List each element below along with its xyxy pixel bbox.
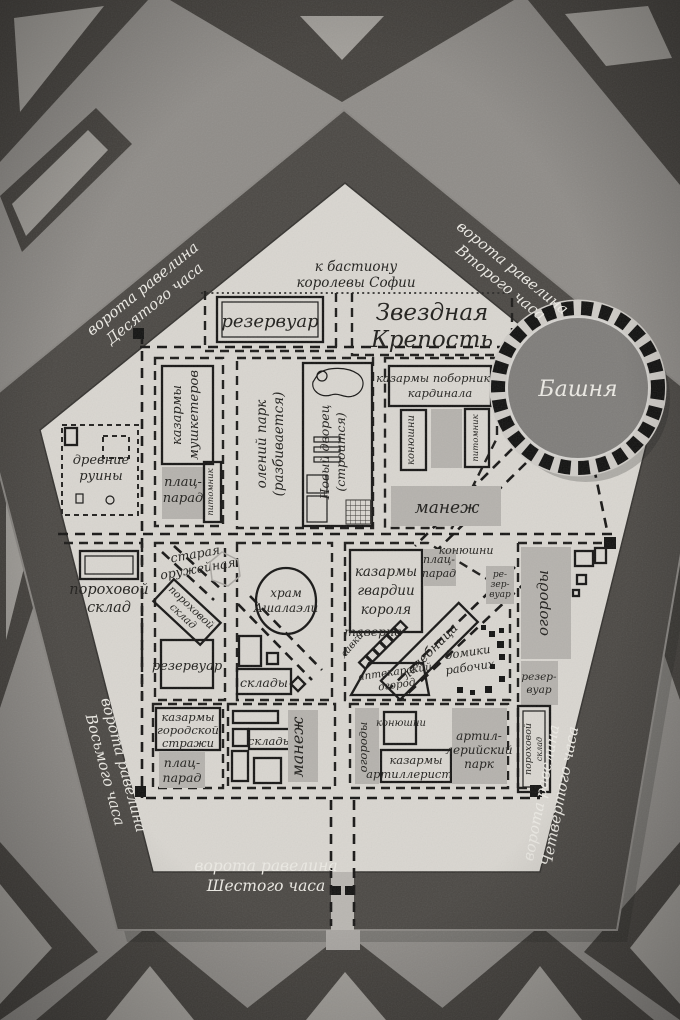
fortress-map: к бастиону королевы Софии Звездная Крепо… bbox=[0, 0, 680, 1020]
vignette bbox=[0, 0, 680, 1020]
